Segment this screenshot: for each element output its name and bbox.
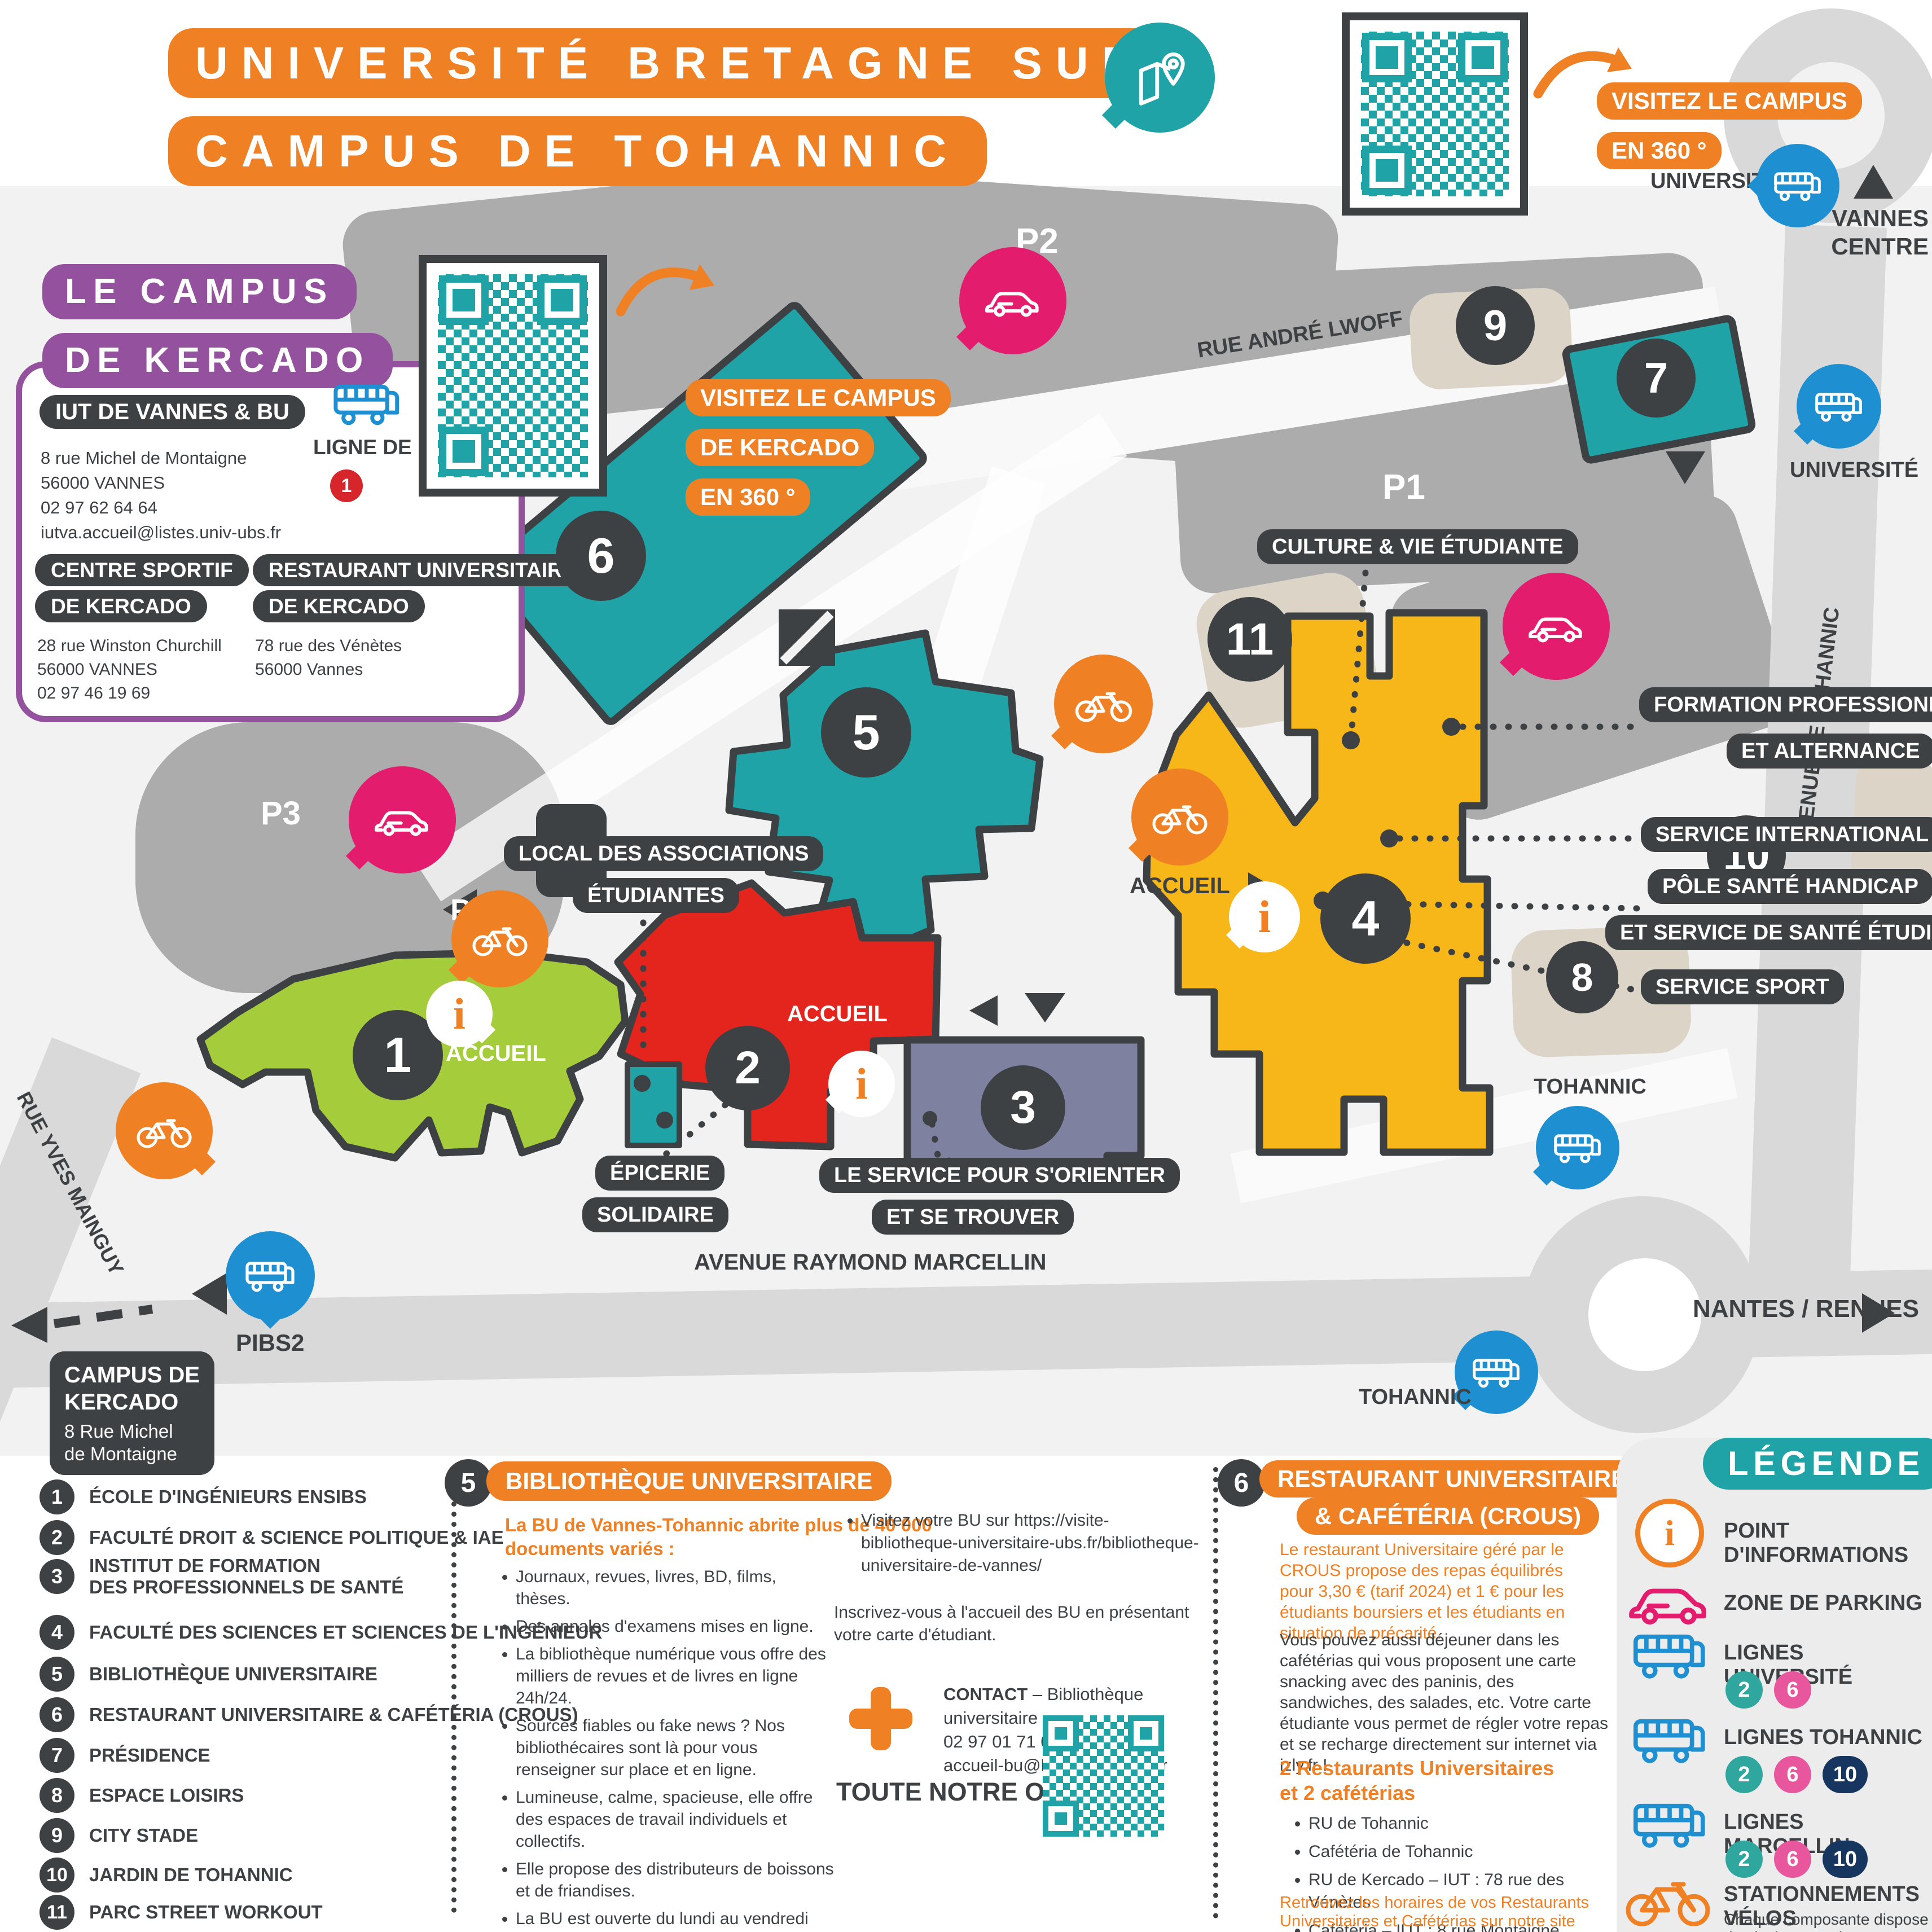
landmark-num: 6 [39,1697,74,1732]
visit-360-line1: VISITEZ LE CAMPUS [1597,82,1862,120]
map-pin-icon [1131,49,1189,107]
bike-marker-building4 [1131,769,1228,866]
landmark-num: 7 [39,1738,74,1773]
ru-kercado-title-line1: RESTAURANT UNIVERSITAIRE [253,554,592,586]
building-marker-8: 8 [1546,941,1618,1013]
info-point-building1: i [426,981,493,1047]
ru-paragraph-orange: Le restaurant Universitaire géré par le … [1280,1539,1601,1644]
bu-bullet: Des annales d'examens mises en ligne. [516,1615,835,1637]
campus-map-poster: UNIVERSITÉ BRETAGNE SUD CAMPUS DE TOHANN… [0,0,1932,1932]
bus-stop-tohannic1 [1536,1106,1619,1189]
bu-bullet: La BU est ouverte du lundi au vendredi (… [516,1908,835,1932]
ru-bullet: RU de Tohannic [1309,1812,1624,1835]
ru-footer: Retrouvez les horaires de vos Restaurant… [1280,1894,1602,1932]
bu-inscription: Inscrivez-vous à l'accueil des BU en pré… [834,1601,1195,1646]
landmark-label: PARC STREET WORKOUT [89,1902,323,1923]
local-associations-label-line2: ÉTUDIANTES [573,878,739,913]
building-marker-6: 6 [556,511,646,601]
bike-icon [1621,1872,1715,1927]
landmark-num: 4 [39,1615,74,1650]
landmark-label-line: DES PROFESSIONNELS DE SANTÉ [89,1577,403,1598]
landmark-label: ÉCOLE D'INGÉNIEURS ENSIBS [89,1486,367,1508]
formation-pro-label-line2: ET ALTERNANCE [1727,734,1932,769]
ru-kercado-address: 78 rue des Vénètes 56000 Vannes [255,634,402,682]
iut-email: iutva.accueil@listes.univ-ubs.fr [41,520,281,545]
ru-address-line: 56000 Vannes [255,658,402,682]
landmark-label: PRÉSIDENCE [89,1745,210,1766]
landmark-num: 9 [39,1818,74,1853]
bus-icon [1630,1798,1710,1851]
bu-bullet: Lumineuse, calme, spacieuse, elle offre … [516,1786,835,1852]
ru-kercado-title-line2: DE KERCADO [253,590,425,622]
culture-vie-etudiante-label: CULTURE & VIE ÉTUDIANTE [1257,529,1578,564]
bus-stop-universite-right [1797,364,1881,449]
iut-phone: 02 97 62 64 64 [41,495,281,520]
bus-stop-tohannic2-label: TOHANNIC [1359,1385,1472,1410]
iut-address-line: 8 rue Michel de Montaigne [41,446,281,471]
poster-title-line1: UNIVERSITÉ BRETAGNE SUD [168,28,1175,98]
visit-360-line2: EN 360 ° [1597,132,1722,169]
line-badge-6: 6 [1774,1841,1811,1878]
line-badge-6: 6 [1774,1756,1811,1793]
iut-address-line: 56000 VANNES [41,471,281,495]
bu-visit-url: Visitez votre BU sur https://visite-bibl… [861,1509,1200,1577]
legend-title: LÉGENDE [1703,1438,1932,1490]
pole-sante-label-line1: PÔLE SANTÉ HANDICAP [1648,869,1932,904]
landmark-num: 1 [39,1479,74,1514]
landmark-label-line: INSTITUT DE FORMATION [89,1555,403,1577]
bus-stop-universite-right-label: UNIVERSITÉ [1790,458,1918,482]
landmark-label: FACULTÉ DROIT & SCIENCE POLITIQUE & IAE [89,1527,504,1548]
service-international-label: SERVICE INTERNATIONAL [1641,817,1932,852]
bike-marker-west [116,1082,213,1179]
car-icon [372,802,433,838]
ru-address-line: 78 rue des Vénètes [255,634,402,658]
nantes-rennes-label: NANTES / RENNES [1693,1295,1919,1323]
bu-bullet: Elle propose des distributeurs de boisso… [516,1858,835,1902]
local-associations-label-line1: LOCAL DES ASSOCIATIONS [504,836,823,871]
ru-subhead: 2 Restaurants Universitaires et 2 cafété… [1280,1756,1554,1806]
bike-icon [1073,686,1134,723]
bus-stop-tohannic1-label: TOHANNIC [1534,1075,1646,1099]
bike-marker-building5 [1054,655,1153,753]
building-marker-4: 4 [1320,873,1411,964]
bus-icon [1772,168,1824,203]
qr-code-kercado-360 [419,255,607,497]
bus-icon [1813,389,1865,424]
sport-center-title-line1: CENTRE SPORTIF [35,554,249,586]
poster-title-line2: CAMPUS DE TOHANNIC [168,116,987,186]
line-badge-2: 2 [1725,1671,1763,1709]
qr-code-bu-offer [1043,1715,1164,1837]
kercado-exit-line: de Montaigne [64,1443,200,1465]
kercado-exit-label: CAMPUS DE KERCADO 8 Rue Michel de Montai… [50,1351,214,1475]
building-marker-9: 9 [1456,286,1535,365]
car-icon [1526,608,1587,644]
landmark-label: JARDIN DE TOHANNIC [89,1864,293,1886]
bus-stop-pibs2-label: PIBS2 [236,1329,304,1356]
ru-paragraph-dark: Vous pouvez aussi déjeuner dans les café… [1280,1630,1609,1776]
landmark-num: 3 [39,1559,74,1594]
legend-universite-badges: 2 6 [1725,1671,1811,1709]
landmark-num: 2 [39,1520,74,1555]
map-pin-badge [1105,23,1215,133]
bus-icon [1552,1130,1604,1165]
line-badge-10: 10 [1823,1756,1868,1793]
orienter-label-line1: LE SERVICE POUR S'ORIENTER [819,1158,1180,1193]
ru-bullet: Cafétéria de Tohannic [1309,1841,1624,1863]
kercado-exit-line: KERCADO [64,1389,200,1416]
bu-section-number: 5 [445,1459,492,1507]
bike-icon [134,1113,194,1149]
landmark-label: INSTITUT DE FORMATIONDES PROFESSIONNELS … [89,1555,403,1598]
car-icon [1625,1575,1713,1627]
parking-p1-label: P1 [1382,467,1425,507]
arrow-curved-kercado [615,248,717,333]
sport-address-line: 28 rue Winston Churchill [37,634,222,658]
service-sport-label: SERVICE SPORT [1641,969,1844,1004]
parking-marker-p2 [959,247,1066,354]
bus-stop-pibs2 [226,1231,315,1320]
landmark-num: 11 [39,1895,74,1930]
iut-vannes-title: IUT DE VANNES & BU [39,395,305,429]
building-marker-11: 11 [1207,597,1292,682]
info-point-building4: i [1229,881,1300,952]
bike-icon [1150,799,1210,835]
bike-marker-building1 [451,890,548,987]
bike-icon [470,921,530,957]
parking-p3-label: P3 [261,794,301,832]
sport-address-line: 56000 VANNES [37,658,222,682]
kercado-title-line1: LE CAMPUS [42,264,357,319]
building-marker-5: 5 [821,687,911,778]
legend-tohannic-badges: 2 6 10 [1725,1756,1868,1793]
bus-icon [1470,1355,1522,1390]
bus-icon [243,1258,297,1294]
legend-velos-note: Chaque composante dispose de plusieurs s… [1724,1911,1929,1932]
parking-marker-p3 [349,766,456,873]
legend-velos-note-line: de plusieurs stationnements [1724,1929,1929,1932]
bus-icon [1630,1628,1710,1681]
line-badge-2: 2 [1725,1756,1763,1793]
line-badge-10: 10 [1823,1841,1868,1878]
formation-pro-label-line1: FORMATION PROFESSIONNELLE [1639,687,1932,722]
landmark-label: CITY STADE [89,1825,198,1846]
sport-center-title-line2: DE KERCADO [35,590,207,622]
local-associations-shape [627,1064,679,1145]
car-icon [982,283,1043,319]
bus-line-1-badge: 1 [330,469,363,502]
kercado-exit-line: 8 Rue Michel [64,1420,200,1443]
landmark-num: 8 [39,1778,74,1813]
qr-code-tohannic-360 [1342,12,1528,216]
bu-bullet: Sources fiables ou fake news ? Nos bibli… [516,1715,835,1781]
legend-marcellin-badges: 2 6 10 [1725,1841,1868,1878]
accueil-label-building4: ACCUEIL [1130,873,1230,899]
ru-subhead-line: et 2 cafétérias [1280,1781,1554,1806]
bu-contact-label: CONTACT [943,1684,1028,1704]
parking-marker-right [1503,573,1610,680]
info-point-building2: i [828,1051,895,1117]
landmark-label: BIBLIOTHÈQUE UNIVERSITAIRE [89,1663,377,1685]
line-badge-2: 2 [1725,1841,1763,1878]
separator-1 [451,1481,456,1913]
bu-bullet-list: Journaux, revues, livres, BD, films, thè… [497,1566,835,1932]
legend-info-label: POINT D'INFORMATIONS [1724,1519,1932,1567]
bu-bullet: Journaux, revues, livres, BD, films, thè… [516,1566,835,1610]
building-marker-2: 2 [705,1026,790,1110]
landmark-num: 5 [39,1657,74,1692]
bu-bullet: La bibliothèque numérique vous offre des… [516,1643,835,1709]
visit-kercado-360-line1: VISITEZ LE CAMPUS [686,379,951,416]
bus-icon [1630,1713,1710,1766]
bu-section-title: BIBLIOTHÈQUE UNIVERSITAIRE [486,1461,892,1501]
info-point-legend-icon: i [1635,1499,1704,1567]
line-badge-6: 6 [1774,1671,1811,1709]
street-marcellin-label: AVENUE RAYMOND MARCELLIN [694,1250,1046,1275]
pole-sante-label-line2: ET SERVICE DE SANTÉ ÉTUDIANT [1605,915,1932,950]
ru-section-title-line1: RESTAURANT UNIVERSITAIRE [1259,1460,1645,1498]
building-marker-7: 7 [1617,339,1696,418]
plus-icon [849,1687,912,1750]
landmark-label: ESPACE LOISIRS [89,1785,244,1806]
bus-line-icon [330,379,403,428]
legend-parking-label: ZONE DE PARKING [1724,1591,1922,1615]
sport-center-address: 28 rue Winston Churchill 56000 VANNES 02… [37,634,222,705]
ru-section-number: 6 [1218,1459,1265,1507]
accueil-label-building1: ACCUEIL [446,1041,546,1066]
ru-section-title-line2: & CAFÉTÉRIA (CROUS) [1297,1498,1599,1535]
building-marker-3: 3 [981,1065,1065,1150]
epicerie-solidaire-label-line1: ÉPICERIE [595,1156,725,1191]
legend-velos-note-line: Chaque composante dispose [1724,1911,1929,1929]
vannes-line2: CENTRE [1827,232,1929,261]
vannes-centre-label: VANNES CENTRE [1827,204,1929,261]
legend-tohannic-label: LIGNES TOHANNIC [1724,1725,1922,1750]
visit-kercado-360-line3: EN 360 ° [686,478,810,516]
kercado-exit-line: CAMPUS DE [64,1362,200,1389]
orienter-label-line2: ET SE TROUVER [872,1200,1074,1235]
landmark-num: 10 [39,1858,74,1893]
sport-phone: 02 97 46 19 69 [37,682,222,705]
iut-vannes-address: 8 rue Michel de Montaigne 56000 VANNES 0… [41,446,281,545]
bu-visit-list: Visitez votre BU sur https://visite-bibl… [842,1509,1200,1583]
vannes-line1: VANNES [1827,204,1929,232]
visit-kercado-360-line2: DE KERCADO [686,429,874,466]
accueil-label-building2: ACCUEIL [787,1002,888,1027]
ru-subhead-line: 2 Restaurants Universitaires [1280,1756,1554,1781]
epicerie-solidaire-label-line2: SOLIDAIRE [582,1197,728,1232]
